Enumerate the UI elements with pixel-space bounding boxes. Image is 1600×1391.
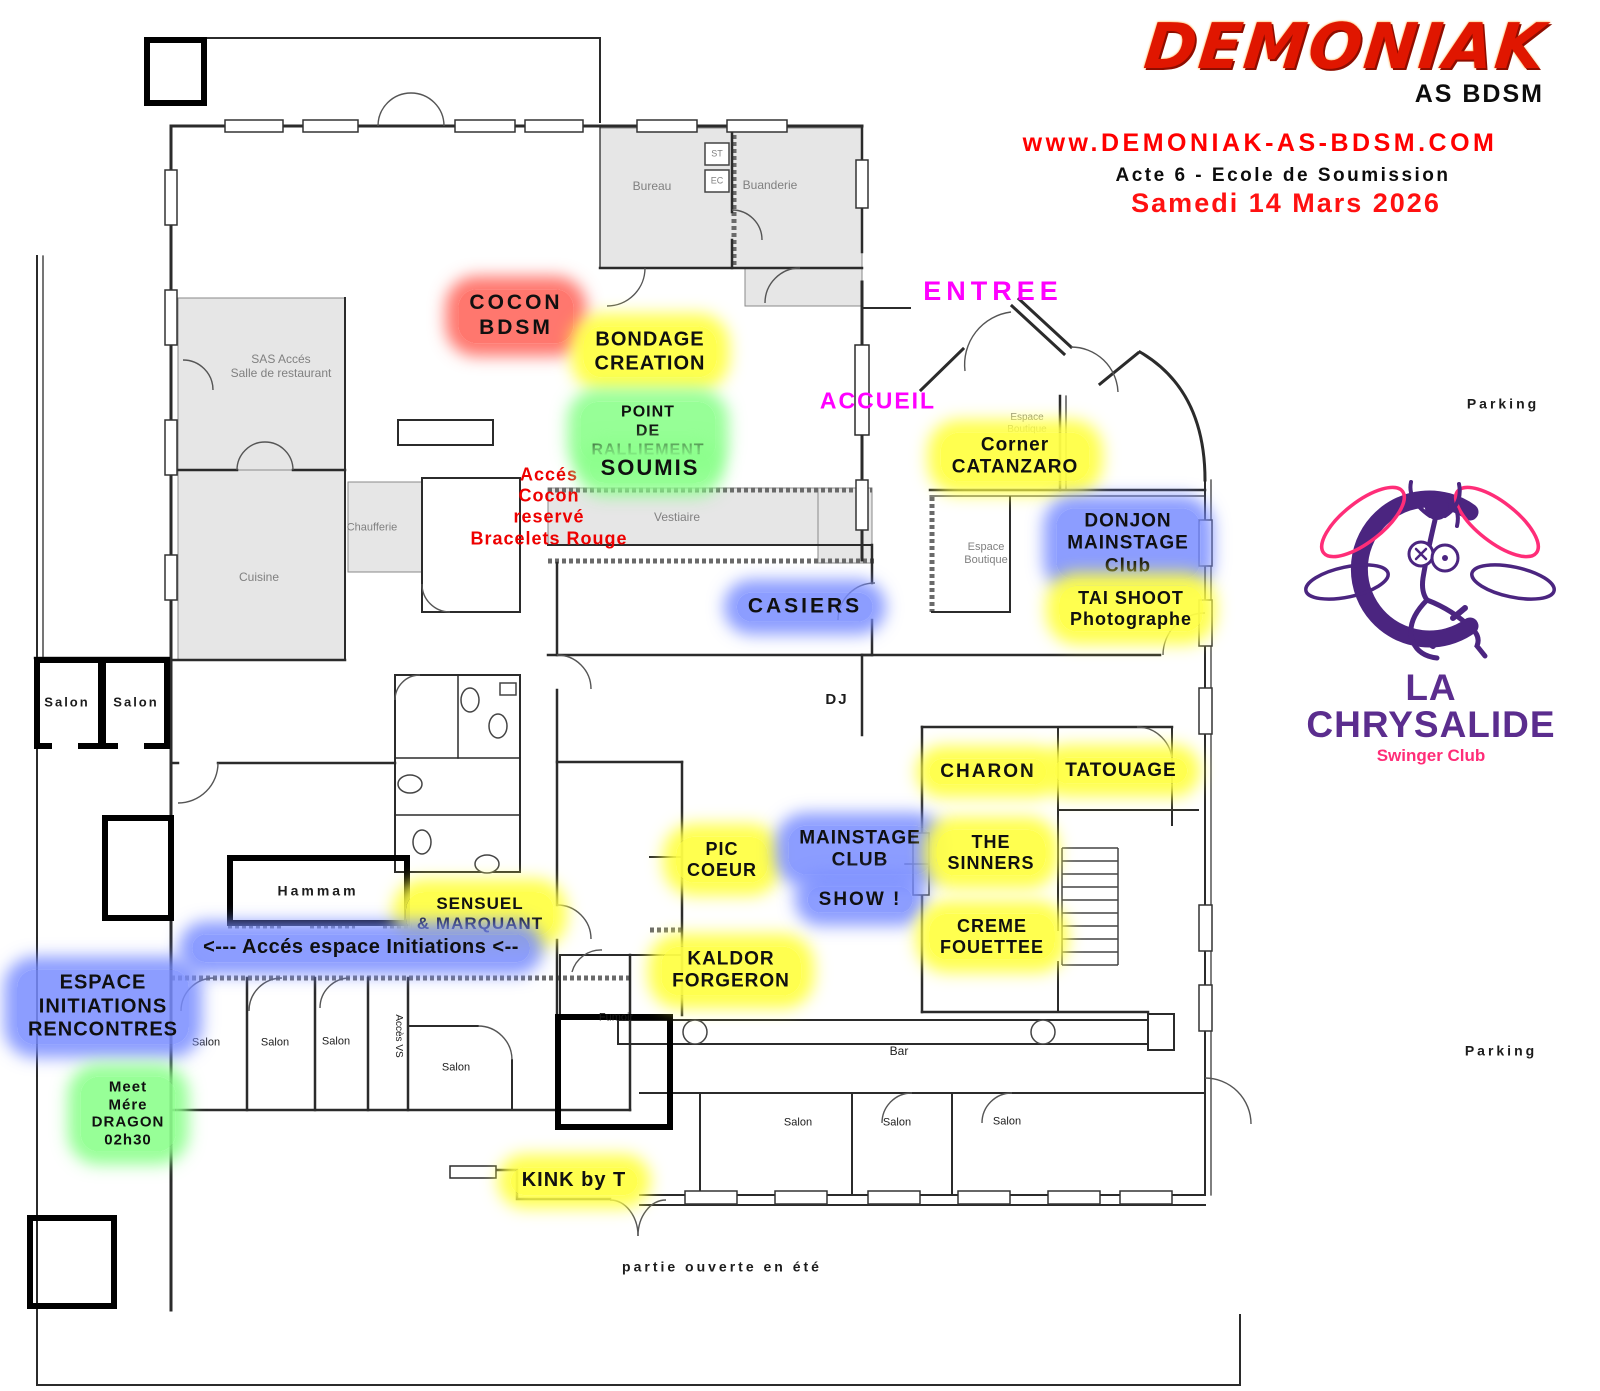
label-kaldor-forgeron: KALDOR FORGERON bbox=[661, 947, 801, 996]
chrysalide-fairy-icon bbox=[1285, 472, 1577, 668]
room-acces-vs: Accès VS bbox=[392, 1014, 404, 1057]
room-fumoir: Fumoir bbox=[599, 1012, 633, 1025]
room-cuisine: Cuisine bbox=[239, 570, 279, 584]
event-header: DEMONIAK AS BDSM www.DEMONIAK-AS-BDSM.CO… bbox=[960, 14, 1560, 219]
label-tai-shoot: TAI SHOOT Photographe bbox=[1059, 586, 1203, 632]
room-hammam: Hammam bbox=[277, 883, 358, 900]
room-salon-5: Salon bbox=[322, 1036, 350, 1049]
floor-plan-page: ENTREEACCUEILAccés Cocon reservé Bracele… bbox=[0, 0, 1600, 1391]
room-st: ST bbox=[711, 149, 723, 160]
label-casiers: CASIERS bbox=[737, 593, 873, 622]
room-bar: Bar bbox=[890, 1044, 909, 1058]
label-acces-espace-initiations: <--- Accés espace Initiations <-- bbox=[192, 934, 530, 962]
label-cocon-bdsm: COCON BDSM bbox=[458, 289, 573, 343]
room-salon-2: Salon bbox=[113, 694, 158, 709]
label-meet-mere-dragon: Meet Mére DRAGON 02h30 bbox=[81, 1077, 176, 1152]
venue-tagline: Swinger Club bbox=[1285, 746, 1577, 766]
room-ec: EC bbox=[711, 176, 724, 187]
room-bureau: Bureau bbox=[633, 179, 672, 193]
label-mainstage-club: MAINSTAGE CLUB bbox=[788, 826, 932, 875]
label-espace-initiations-rencontres: ESPACE INITIATIONS RENCONTRES bbox=[17, 970, 189, 1045]
label-kink-by-t: KINK by T bbox=[511, 1167, 638, 1195]
label-show: SHOW ! bbox=[808, 887, 913, 913]
label-dj: DJ bbox=[825, 691, 848, 709]
label-bondage-creation: BONDAGE CREATION bbox=[584, 326, 717, 377]
room-vestiaire: Vestiaire bbox=[654, 510, 700, 524]
label-tatouage: TATOUAGE bbox=[1054, 758, 1187, 784]
room-salon-8: Salon bbox=[883, 1117, 911, 1130]
event-title: Acte 6 - Ecole de Soumission bbox=[1006, 165, 1560, 187]
label-pic-coeur: PIC COEUR bbox=[676, 837, 768, 883]
venue-name: LA CHRYSALIDE bbox=[1285, 669, 1577, 743]
label-corner-catanzaro: Corner CATANZARO bbox=[941, 433, 1090, 482]
staircase bbox=[1062, 848, 1118, 965]
room-espace-boutique-2: Espace Boutique bbox=[964, 541, 1007, 567]
gray-rooms bbox=[178, 128, 872, 660]
label-entree: ENTREE bbox=[923, 276, 1063, 308]
label-soumis: SOUMIS bbox=[590, 453, 711, 483]
label-sensuel-marquant: SENSUEL & MARQUANT bbox=[406, 892, 554, 936]
room-buanderie: Buanderie bbox=[743, 178, 798, 192]
label-charon: CHARON bbox=[929, 759, 1046, 785]
room-salon-4: Salon bbox=[261, 1037, 289, 1050]
label-creme-fouettee: CREME FOUETTEE bbox=[929, 914, 1055, 960]
room-salon-9: Salon bbox=[993, 1116, 1021, 1129]
label-parking-bottom: Parking bbox=[1465, 1043, 1537, 1060]
room-chaufferie: Chaufferie bbox=[347, 522, 398, 535]
website-url: www.DEMONIAK-AS-BDSM.COM bbox=[960, 129, 1560, 158]
room-salon-6: Salon bbox=[442, 1062, 470, 1075]
label-accueil: ACCUEIL bbox=[820, 387, 936, 414]
room-sas-acces: SAS Accés Salle de restaurant bbox=[231, 352, 332, 380]
venue-logo: LA CHRYSALIDE Swinger Club bbox=[1285, 472, 1577, 766]
label-partie-ouverte: partie ouverte en été bbox=[622, 1259, 822, 1276]
room-salon-7: Salon bbox=[784, 1117, 812, 1130]
label-donjon-mainstage: DONJON MAINSTAGE Club bbox=[1056, 508, 1200, 579]
demoniak-logo: DEMONIAK bbox=[957, 14, 1564, 80]
label-parking-top: Parking bbox=[1467, 396, 1539, 413]
room-salon-1: Salon bbox=[44, 694, 89, 709]
room-salon-3: Salon bbox=[192, 1037, 220, 1050]
demoniak-logo-subtitle: AS BDSM bbox=[960, 80, 1560, 109]
label-the-sinners: THE SINNERS bbox=[936, 830, 1045, 876]
event-date: Samedi 14 Mars 2026 bbox=[1012, 188, 1560, 219]
